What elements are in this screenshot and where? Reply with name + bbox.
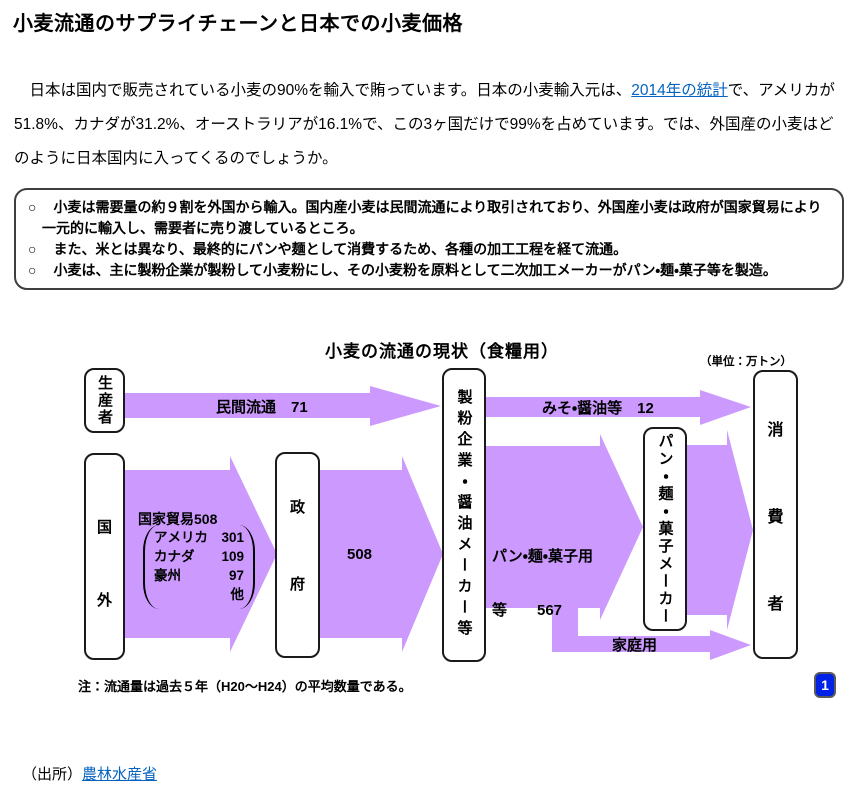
node-secondary-makers-label: パン・麺・菓子メーカー xyxy=(655,433,676,626)
label-household: 家庭用 xyxy=(612,637,657,655)
breakdown-value: 97 xyxy=(229,566,244,585)
node-overseas-char: 外 xyxy=(97,589,112,610)
node-government-char: 府 xyxy=(290,573,305,594)
node-consumers: 消 費 者 xyxy=(753,370,798,659)
label-bread-noodle-line2: 等 567 xyxy=(492,602,593,620)
node-secondary-makers: パン・麺・菓子メーカー xyxy=(643,427,687,631)
source-prefix: （出所） xyxy=(22,766,82,783)
arrow-makers-to-consumers xyxy=(687,430,753,630)
page-title: 小麦流通のサプライチェーンと日本での小麦価格 xyxy=(13,7,463,36)
label-bread-noodle: パン・麺・菓子用 等 567 xyxy=(492,512,593,656)
node-producers-label: 生産者 xyxy=(94,375,115,426)
breakdown-row: 他 xyxy=(154,585,244,604)
breakdown-country: 豪州 xyxy=(154,566,181,585)
bullet-text: また、米とは異なり、最終的にパンや麺として消費するため、各種の加工工程を経て流通… xyxy=(53,241,627,257)
node-consumers-char: 者 xyxy=(767,590,783,614)
breakdown-value: 他 xyxy=(231,585,245,604)
label-miso-soy: みそ・醤油等 12 xyxy=(542,400,654,418)
label-private-distribution: 民間流通 71 xyxy=(216,399,308,417)
node-government-char: 政 xyxy=(290,496,305,517)
bullet-text: 小麦は需要量の約９割を外国から輸入。国内産小麦は民間流通により取引されており、外… xyxy=(42,199,822,236)
summary-box: ○小麦は需要量の約９割を外国から輸入。国内産小麦は民間流通により取引されており、… xyxy=(14,188,844,290)
node-consumers-char: 費 xyxy=(767,503,783,527)
diagram-note: 注：流通量は過去５年（H20～H24）の平均数量である。 xyxy=(78,676,412,695)
summary-bullet: ○また、米とは異なり、最終的にパンや麺として消費するため、各種の加工工程を経て流… xyxy=(28,239,832,260)
breakdown-country: アメリカ xyxy=(154,528,208,547)
summary-bullet: ○小麦は需要量の約９割を外国から輸入。国内産小麦は民間流通により取引されており、… xyxy=(28,197,832,239)
state-trade-breakdown: アメリカ 301 カナダ 109 豪州 97 他 xyxy=(143,525,255,609)
bullet-circle-icon: ○ xyxy=(28,262,36,278)
source-link-maff[interactable]: 農林水産省 xyxy=(82,766,157,783)
diagram-title: 小麦の流通の現状（食糧用） xyxy=(325,337,559,362)
breakdown-row: アメリカ 301 xyxy=(154,528,244,547)
breakdown-row: カナダ 109 xyxy=(154,547,244,566)
wheat-distribution-diagram: 小麦の流通の現状（食糧用） （単位：万トン） 生産者 国 外 政 府 製粉企業・… xyxy=(0,333,858,713)
node-overseas: 国 外 xyxy=(84,453,125,660)
node-millers-label: 製粉企業・醤油メーカー等 xyxy=(454,389,475,641)
page-number-badge: 1 xyxy=(814,672,836,698)
node-government: 政 府 xyxy=(275,452,320,658)
bullet-text: 小麦は、主に製粉企業が製粉して小麦粉にし、その小麦粉を原料として二次加工メーカー… xyxy=(53,262,776,278)
bullet-circle-icon: ○ xyxy=(28,241,36,257)
node-millers: 製粉企業・醤油メーカー等 xyxy=(442,368,486,662)
node-consumers-char: 消 xyxy=(767,416,783,440)
breakdown-value: 109 xyxy=(221,547,244,566)
source-line: （出所）農林水産省 xyxy=(22,763,157,784)
intro-text-before: 日本は国内で販売されている小麦の90%を輸入で賄っています。日本の小麦輸入元は、 xyxy=(14,82,631,99)
breakdown-value: 301 xyxy=(221,528,244,547)
flow-arrows-layer xyxy=(0,333,858,713)
label-gov-to-millers: 508 xyxy=(347,546,372,564)
bullet-circle-icon: ○ xyxy=(28,199,36,215)
wheat-supply-chain-page: { "colors": { "arrow_purple": "#CC99FF",… xyxy=(0,0,858,795)
breakdown-row: 豪州 97 xyxy=(154,566,244,585)
statistics-2014-link[interactable]: 2014年の統計 xyxy=(631,82,727,99)
node-overseas-char: 国 xyxy=(97,516,112,537)
label-bread-noodle-line1: パン・麺・菓子用 xyxy=(492,548,593,566)
summary-bullet: ○小麦は、主に製粉企業が製粉して小麦粉にし、その小麦粉を原料として二次加工メーカ… xyxy=(28,260,832,281)
arrow-gov-to-millers xyxy=(320,456,443,652)
node-producers: 生産者 xyxy=(84,368,125,433)
diagram-unit-label: （単位：万トン） xyxy=(700,353,792,369)
intro-paragraph: 日本は国内で販売されている小麦の90%を輸入で賄っています。日本の小麦輸入元は、… xyxy=(14,74,846,176)
breakdown-country: カナダ xyxy=(154,547,195,566)
